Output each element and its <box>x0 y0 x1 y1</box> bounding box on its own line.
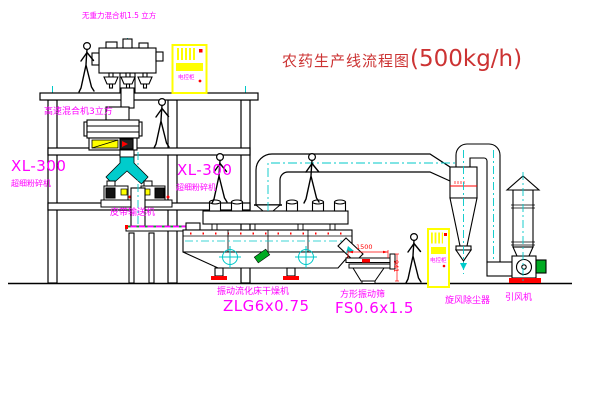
gravity-free-mixer <box>92 39 163 93</box>
title-chinese: 农药生产线流程图 <box>282 52 410 70</box>
label-cabinet-right: 电控柜 <box>430 259 447 265</box>
label-cabinet-top: 电控柜 <box>178 76 195 82</box>
label-sieve-model: FS0.6x1.5 <box>335 301 414 316</box>
cabinet-indicator-light <box>444 233 447 236</box>
label-mill-left-model: XL-300 <box>11 159 66 174</box>
label-fan: 引风机 <box>505 294 532 303</box>
dimension-sieve-height: 941 <box>393 260 400 272</box>
cyclone-separator <box>450 144 500 274</box>
person-figure <box>79 43 94 92</box>
conveyor-legs <box>129 233 154 283</box>
exhaust-duct <box>254 154 455 211</box>
pulverizer-mill-left <box>101 181 135 207</box>
diagram-title: 农药生产线流程图(500kg/h) <box>282 46 522 72</box>
control-cabinet-top <box>173 45 207 93</box>
mixer-discharge-valves <box>104 73 152 88</box>
label-belt-conveyor: 皮带输送机 <box>110 209 155 218</box>
fan-motor <box>536 260 546 273</box>
label-mill-left-name: 超细粉碎机 <box>11 180 51 188</box>
person-figure <box>406 234 421 283</box>
label-high-speed-mixer: 高速混合机3立方 <box>44 108 113 117</box>
cabinet-indicator-light <box>199 49 203 53</box>
label-dryer-model: ZLG6x0.75 <box>223 299 310 314</box>
label-dryer-name: 振动流化床干燥机 <box>217 288 289 297</box>
fan-base-red <box>509 278 541 283</box>
label-cyclone: 旋风除尘器 <box>445 297 490 306</box>
fluid-bed-dryer <box>183 200 363 280</box>
label-mill-center-name: 超细粉碎机 <box>176 184 216 192</box>
person-figure <box>154 99 169 148</box>
label-gravity-free-mixer: 无重力混合机1.5 立方 <box>82 12 156 20</box>
label-mill-center-model: XL-300 <box>177 163 232 178</box>
title-capacity: (500kg/h) <box>410 46 522 72</box>
dimension-sieve-width: 1500 <box>356 244 373 251</box>
pesticide-line-flow-diagram: 农药生产线流程图(500kg/h) 无重力混合机1.5 立方 电控柜 高速混合机… <box>0 0 600 403</box>
dryer-feet <box>211 268 299 280</box>
